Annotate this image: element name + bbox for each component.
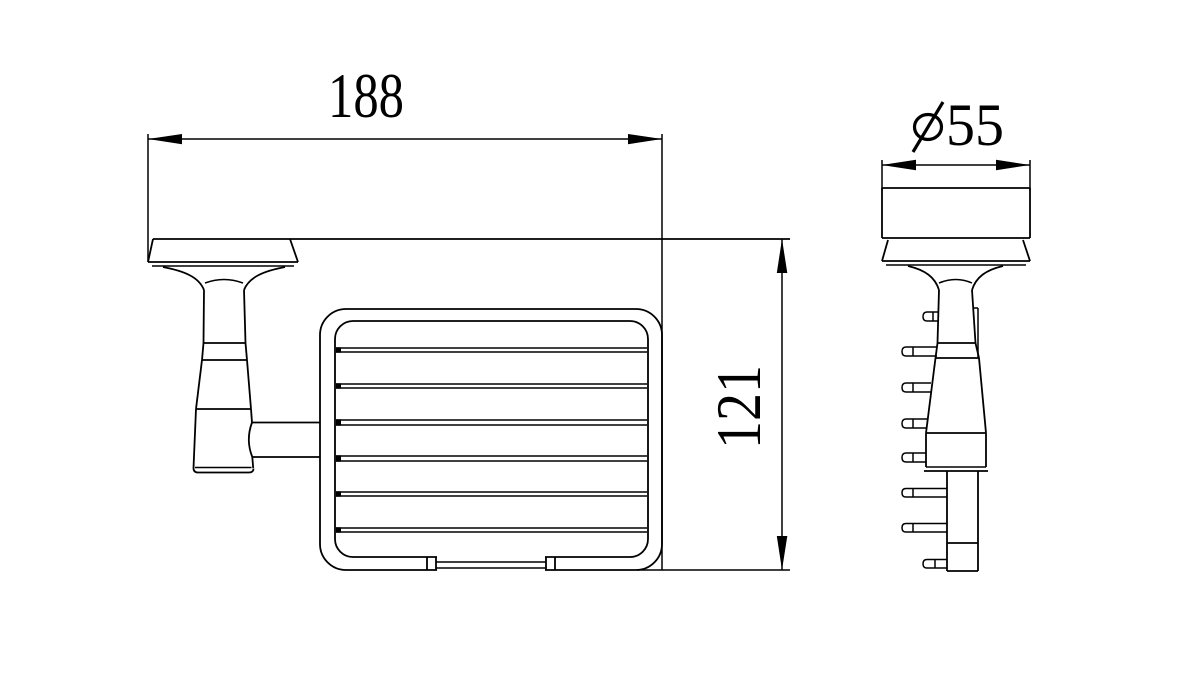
wire-prong (902, 489, 947, 498)
side-neck-left (938, 290, 940, 343)
wire-prong (902, 419, 928, 428)
front-view-post (148, 239, 790, 473)
post-cone-right (247, 360, 251, 409)
dimension-diameter-label: 55 (946, 92, 1004, 158)
side-cone-right (979, 358, 986, 433)
post-lower-left (194, 409, 197, 468)
rail-clip-left (427, 557, 436, 570)
wire-prong (923, 312, 939, 321)
bar-weld-cap (336, 347, 341, 352)
technical-drawing: 188 121 55 (0, 0, 1204, 674)
basket-bottom-rail (427, 549, 555, 576)
basket-bar (336, 420, 647, 425)
post-lower-right-upper (251, 409, 252, 423)
post-band-right (246, 343, 248, 360)
bar-weld-cap (336, 383, 341, 388)
bar-weld-cap (336, 491, 341, 496)
wire-prong (902, 524, 947, 533)
basket-inner-frame (335, 321, 648, 557)
basket-bar (336, 528, 647, 532)
side-flare-left (908, 266, 939, 290)
wire-prong (902, 453, 926, 462)
dimension-height-label: 121 (703, 365, 774, 449)
arrowhead-bottom (777, 536, 788, 570)
basket-bar (336, 456, 647, 461)
side-neck-right (972, 290, 976, 343)
dimension-diameter: 55 (882, 92, 1030, 190)
dimension-width: 188 (148, 60, 662, 570)
arm-sleeve-arc (249, 423, 252, 458)
post-flare-right (244, 267, 285, 290)
basket-bar (336, 384, 647, 388)
side-collar-arc (939, 280, 972, 284)
side-plate-right-slant (1023, 240, 1030, 261)
dimension-width-label: 188 (328, 60, 404, 131)
dimension-height: 121 (637, 239, 790, 570)
bar-weld-cap (336, 455, 341, 461)
bar-weld-cap (336, 419, 341, 425)
wire-prong (902, 383, 931, 392)
side-view-post (882, 188, 1030, 571)
wire-prong (902, 347, 937, 356)
post-cone-left (196, 360, 202, 409)
post-band-left (202, 343, 204, 360)
wire-prongs (902, 312, 947, 568)
front-view-basket (320, 309, 662, 576)
basket-bar (336, 348, 647, 352)
bar-weld-cap (336, 527, 341, 532)
post-base-outline (194, 468, 254, 473)
basket-bars (336, 347, 647, 532)
post-neck-left (204, 290, 205, 343)
side-flare-right (972, 266, 1003, 290)
post-flare-left (163, 267, 204, 290)
rail-clip-right (546, 557, 555, 570)
post-neck-right (244, 290, 246, 343)
arrowhead-right (996, 160, 1030, 171)
wall-plate-right-slant (290, 239, 298, 262)
technical-drawing-page: 188 121 55 (0, 0, 1204, 674)
post-lower-right-lower (252, 457, 253, 468)
arrowhead-left (148, 134, 182, 144)
arrowhead-top (777, 239, 788, 273)
basket-bar (336, 492, 647, 496)
diameter-symbol-icon (913, 102, 943, 152)
side-plate-left-slant (882, 240, 888, 261)
arrowhead-right (628, 134, 662, 144)
side-cone-left (926, 358, 936, 433)
post-collar-arc (205, 280, 243, 284)
wire-prong (923, 560, 947, 569)
arrowhead-left (882, 160, 916, 171)
